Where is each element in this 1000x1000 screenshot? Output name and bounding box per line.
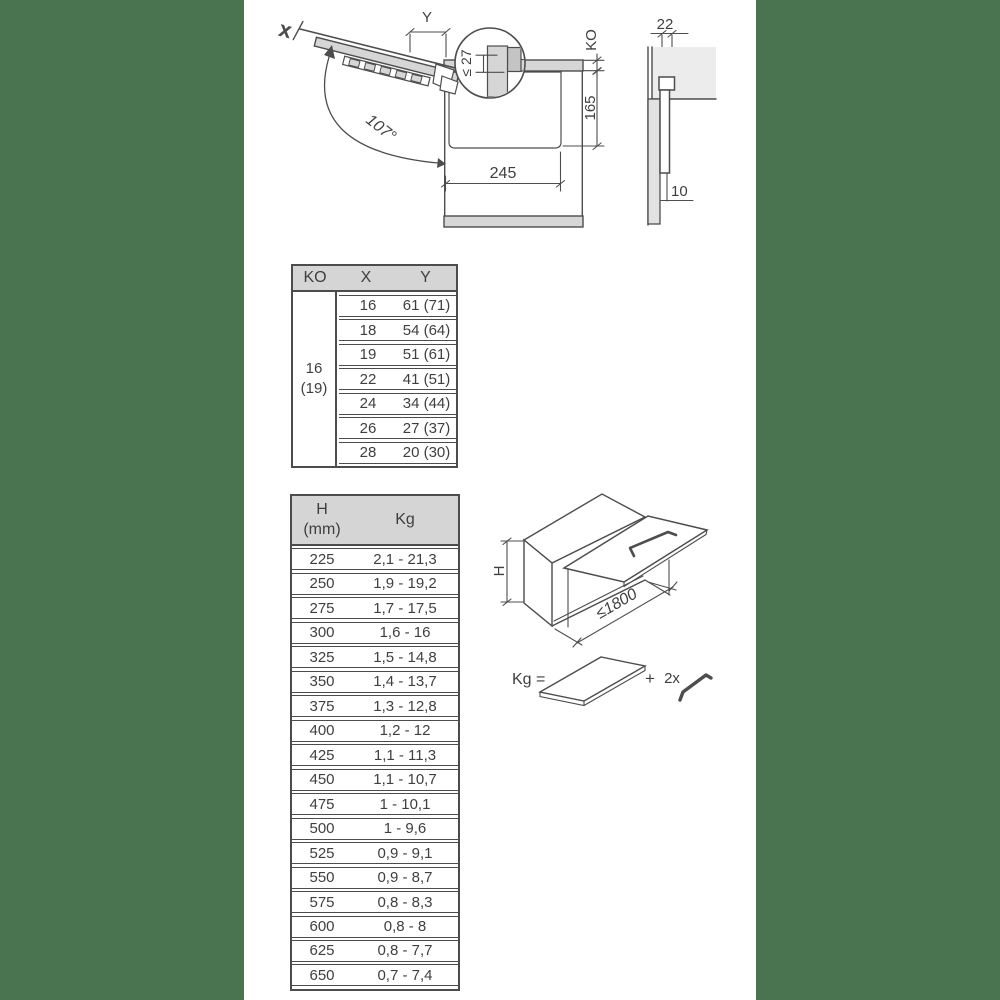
table-row: 5001 - 9,6 bbox=[292, 818, 458, 840]
table-cell: 1,7 - 17,5 bbox=[352, 600, 458, 617]
cabinet-width-dimension: ≤1800 bbox=[555, 582, 677, 647]
table-row: 4001,2 - 12 bbox=[292, 720, 458, 742]
cabinet-bottom-panel bbox=[444, 216, 583, 227]
ko-table-body: 16 (19) 1661 (71)1854 (64)1951 (61)2241 … bbox=[293, 292, 456, 466]
y-label: Y bbox=[422, 9, 432, 26]
gap-10-label: 10 bbox=[671, 183, 688, 200]
table-cell: 650 bbox=[292, 967, 352, 984]
h-kg-table: H (mm) Kg 2252,1 - 21,32501,9 - 19,22751… bbox=[290, 494, 460, 991]
height-165-dimension: 165 bbox=[563, 68, 604, 150]
table-cell: 1,4 - 13,7 bbox=[352, 673, 458, 690]
table-cell: 250 bbox=[292, 575, 352, 592]
isometric-cabinet-drawing: H ≤1800 bbox=[491, 494, 707, 647]
kg-header-cell: Kg bbox=[352, 511, 458, 529]
table-cell: 54 (64) bbox=[397, 322, 456, 339]
height-165-label: 165 bbox=[582, 95, 599, 120]
protrusion-label: ≤ 27 bbox=[458, 49, 474, 76]
table-cell: 400 bbox=[292, 722, 352, 739]
table-row: 1854 (64) bbox=[339, 319, 456, 341]
table-row: 2434 (44) bbox=[339, 393, 456, 415]
table-cell: 22 bbox=[339, 371, 397, 388]
table-cell: 350 bbox=[292, 673, 352, 690]
ko-header-cell: KO bbox=[293, 269, 337, 287]
weight-formula: Kg = + 2x bbox=[512, 657, 711, 706]
table-cell: 425 bbox=[292, 747, 352, 764]
table-cell: 16 bbox=[339, 297, 397, 314]
ko-xy-table: KO X Y 16 (19) 1661 (71)1854 (64)1951 (6… bbox=[291, 264, 458, 468]
table-row: 4501,1 - 10,7 bbox=[292, 769, 458, 791]
table-cell: 51 (61) bbox=[397, 346, 456, 363]
table-row: 3251,5 - 14,8 bbox=[292, 646, 458, 668]
ko-label: KO bbox=[583, 29, 600, 51]
table-row: 6250,8 - 7,7 bbox=[292, 940, 458, 962]
table-cell: 275 bbox=[292, 600, 352, 617]
table-cell: 325 bbox=[292, 649, 352, 666]
kg-equals-label: Kg = bbox=[512, 671, 545, 688]
table-cell: 1,5 - 14,8 bbox=[352, 649, 458, 666]
table-row: 1951 (61) bbox=[339, 344, 456, 366]
h-header-line1: H bbox=[292, 500, 352, 520]
table-cell: 27 (37) bbox=[397, 420, 456, 437]
table-cell: 225 bbox=[292, 551, 352, 568]
table-row: 6500,7 - 7,4 bbox=[292, 964, 458, 986]
table-cell: 600 bbox=[292, 918, 352, 935]
table-row: 3751,3 - 12,8 bbox=[292, 695, 458, 717]
table-cell: 450 bbox=[292, 771, 352, 788]
table-row: 2501,9 - 19,2 bbox=[292, 573, 458, 595]
table-cell: 1,2 - 12 bbox=[352, 722, 458, 739]
hkg-table-header: H (mm) Kg bbox=[292, 496, 458, 546]
page-content: X 107° Y bbox=[244, 0, 756, 1000]
table-cell: 1,9 - 19,2 bbox=[352, 575, 458, 592]
multiplier-label: 2x bbox=[664, 670, 680, 687]
y-header-cell: Y bbox=[395, 269, 456, 287]
door-edge-label: X bbox=[278, 22, 292, 41]
ko-table-rows: 1661 (71)1854 (64)1951 (61)2241 (51)2434… bbox=[339, 292, 456, 466]
table-row: 2820 (30) bbox=[339, 442, 456, 464]
ko-value-line2: (19) bbox=[301, 379, 328, 399]
table-row: 3501,4 - 13,7 bbox=[292, 671, 458, 693]
table-row: 5750,8 - 8,3 bbox=[292, 891, 458, 913]
door-section bbox=[660, 90, 670, 173]
table-cell: 1,1 - 10,7 bbox=[352, 771, 458, 788]
y-dimension: Y bbox=[406, 9, 450, 57]
table-cell: 550 bbox=[292, 869, 352, 886]
table-cell: 34 (44) bbox=[397, 395, 456, 412]
x-header-cell: X bbox=[337, 269, 395, 287]
table-cell: 19 bbox=[339, 346, 397, 363]
table-row: 3001,6 - 16 bbox=[292, 622, 458, 644]
table-cell: 1,1 - 11,3 bbox=[352, 747, 458, 764]
catalog-page: { "colors": { "background": "#4a7350", "… bbox=[0, 0, 1000, 1000]
angle-label: 107° bbox=[362, 112, 399, 146]
table-row: 2751,7 - 17,5 bbox=[292, 597, 458, 619]
cabinet-width-label: ≤1800 bbox=[593, 586, 640, 623]
cabinet-height-label: H bbox=[491, 566, 508, 577]
table-row: 2627 (37) bbox=[339, 417, 456, 439]
table-cell: 0,8 - 8,3 bbox=[352, 894, 458, 911]
fitting-section bbox=[659, 77, 675, 90]
table-cell: 0,8 - 8 bbox=[352, 918, 458, 935]
ko-value-line1: 16 bbox=[306, 359, 323, 379]
depth-245-label: 245 bbox=[490, 165, 517, 182]
table-cell: 375 bbox=[292, 698, 352, 715]
side-view-drawing: X 107° Y bbox=[276, 9, 604, 227]
table-cell: 1,3 - 12,8 bbox=[352, 698, 458, 715]
table-cell: 625 bbox=[292, 942, 352, 959]
table-cell: 1 - 9,6 bbox=[352, 820, 458, 837]
hkg-table-rows: 2252,1 - 21,32501,9 - 19,22751,7 - 17,53… bbox=[292, 546, 458, 989]
table-cell: 575 bbox=[292, 894, 352, 911]
table-row: 6000,8 - 8 bbox=[292, 916, 458, 938]
side-panel-section bbox=[648, 99, 660, 224]
width-22-label: 22 bbox=[657, 16, 674, 33]
handle-icon bbox=[680, 675, 711, 700]
h-header-line2: (mm) bbox=[292, 520, 352, 540]
table-cell: 475 bbox=[292, 796, 352, 813]
ko-dimension: KO bbox=[583, 29, 604, 76]
ko-table-header: KO X Y bbox=[293, 266, 456, 292]
table-row: 4251,1 - 11,3 bbox=[292, 744, 458, 766]
table-cell: 300 bbox=[292, 624, 352, 641]
h-header-cell: H (mm) bbox=[292, 500, 352, 540]
table-cell: 0,9 - 8,7 bbox=[352, 869, 458, 886]
table-row: 4751 - 10,1 bbox=[292, 793, 458, 815]
door-edge-zoom bbox=[488, 46, 508, 97]
table-cell: 41 (51) bbox=[397, 371, 456, 388]
table-cell: 0,7 - 7,4 bbox=[352, 967, 458, 984]
table-cell: 26 bbox=[339, 420, 397, 437]
plus-sign: + bbox=[645, 669, 655, 688]
depth-245-dimension: 245 bbox=[442, 152, 565, 191]
table-cell: 1,6 - 16 bbox=[352, 624, 458, 641]
table-cell: 0,9 - 9,1 bbox=[352, 845, 458, 862]
table-cell: 20 (30) bbox=[397, 444, 456, 461]
table-row: 5500,9 - 8,7 bbox=[292, 867, 458, 889]
ko-merged-cell: 16 (19) bbox=[293, 292, 337, 466]
table-cell: 0,8 - 7,7 bbox=[352, 942, 458, 959]
table-row: 1661 (71) bbox=[339, 295, 456, 317]
table-row: 2241 (51) bbox=[339, 368, 456, 390]
section-view-drawing: 22 10 bbox=[648, 16, 716, 225]
table-cell: 24 bbox=[339, 395, 397, 412]
table-cell: 2,1 - 21,3 bbox=[352, 551, 458, 568]
table-cell: 1 - 10,1 bbox=[352, 796, 458, 813]
table-row: 2252,1 - 21,3 bbox=[292, 548, 458, 570]
cabinet-height-dimension: H bbox=[491, 538, 523, 606]
table-cell: 28 bbox=[339, 444, 397, 461]
table-cell: 500 bbox=[292, 820, 352, 837]
table-cell: 18 bbox=[339, 322, 397, 339]
table-cell: 525 bbox=[292, 845, 352, 862]
table-cell: 61 (71) bbox=[397, 297, 456, 314]
table-row: 5250,9 - 9,1 bbox=[292, 842, 458, 864]
